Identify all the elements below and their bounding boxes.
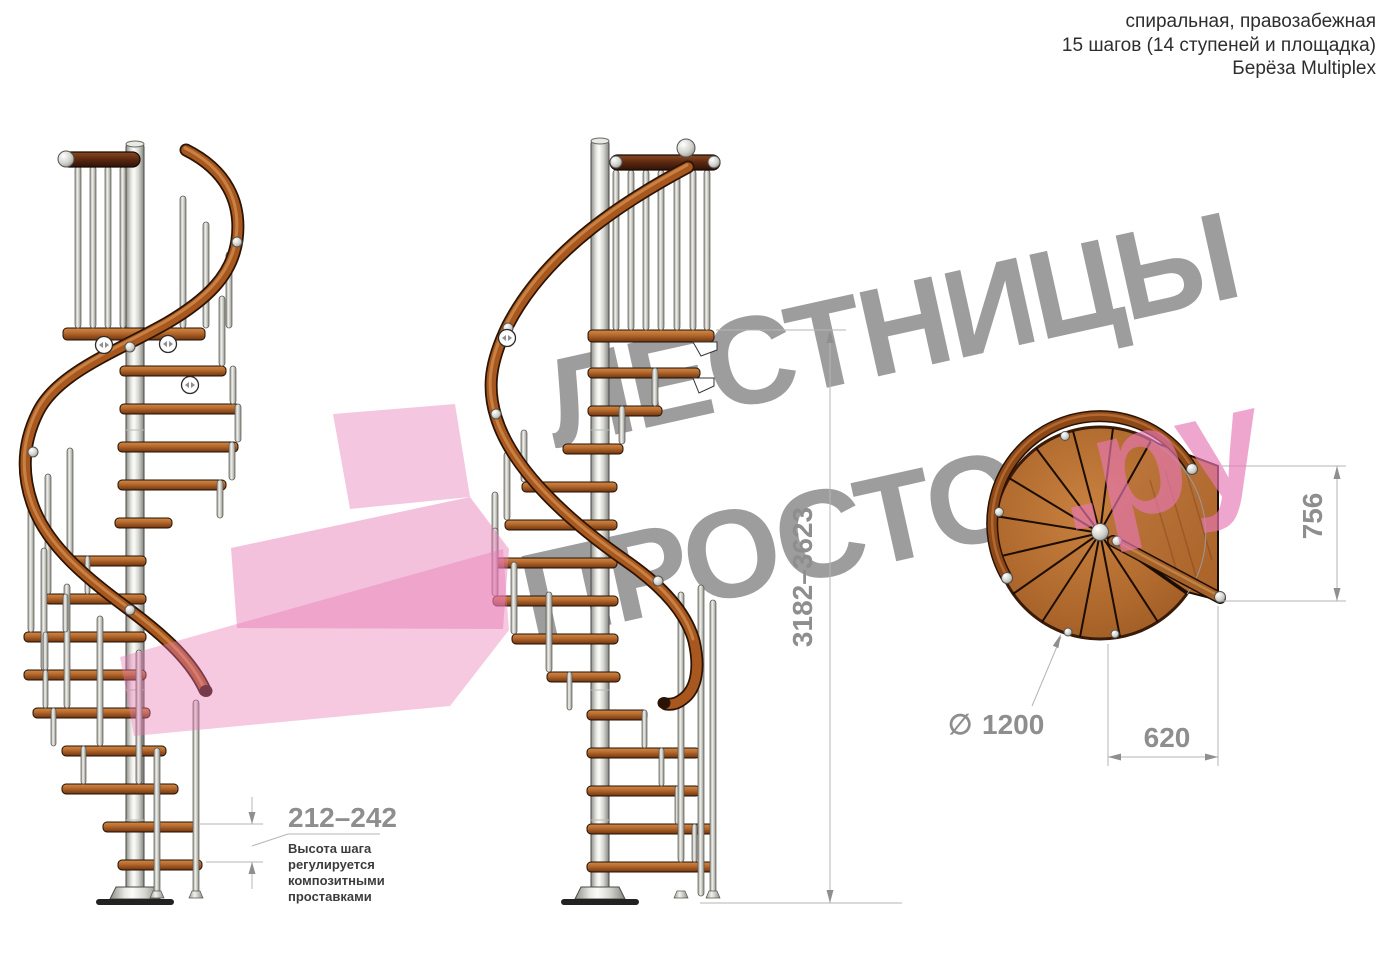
treads-left-view [24,328,240,870]
title-line-type: спиральная, правозабежная [1062,10,1376,34]
elevation-view-left [24,141,242,905]
watermark-arrow-fold [333,404,470,509]
platform-handrail [610,155,720,170]
step-note-line4: проставками [288,889,372,904]
dim-diameter-value: 1200 [982,709,1044,740]
title-line-material: Берёза Multiplex [1062,57,1376,81]
title-line-steps: 15 шагов (14 ступеней и площадка) [1062,34,1376,58]
platform-tread [588,330,714,342]
dim-landing-width: 620 [1144,722,1191,753]
adjuster-plates [96,336,199,394]
base-flange [561,899,639,905]
dim-step-height: 212–242 [288,802,397,833]
title-block: спиральная, правозабежная 15 шагов (14 с… [1062,10,1376,81]
handrail-ball-finial [677,139,695,157]
column-foot [575,887,625,899]
handrail-end-cap [658,697,671,709]
staircase-drawing: ЛЕСТНИЦЫ ПРОСТО [0,0,1400,958]
step-note-line3: композитными [288,873,385,888]
handrail-end-ball [58,151,74,167]
dim-diameter-symbol: ∅ [948,709,972,740]
step-note-line1: Высота шага [288,841,372,856]
adjuster-plate [499,330,516,347]
dim-landing-depth: 756 [1297,493,1328,540]
dim-total-height: 3182–3623 [787,507,818,647]
base-flange [96,899,174,905]
step-note-line2: регулируется [288,857,375,872]
watermark-brand-suffix: .ру [1036,353,1279,565]
drawing-canvas: ЛЕСТНИЦЫ ПРОСТО [0,0,1400,958]
